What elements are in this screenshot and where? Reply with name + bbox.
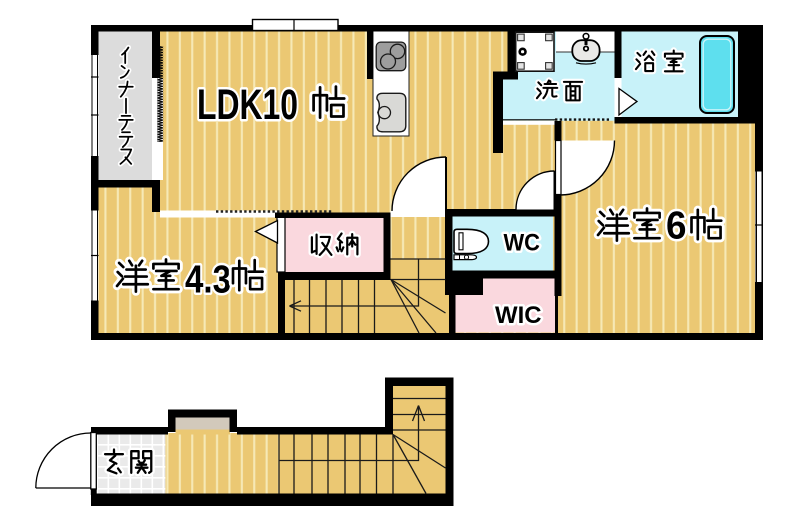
svg-text:4.3: 4.3 — [185, 259, 231, 302]
svg-text:6: 6 — [666, 205, 687, 248]
svg-text:LDK10: LDK10 — [197, 81, 298, 129]
svg-text:WIC: WIC — [495, 302, 542, 329]
svg-text:WC: WC — [504, 230, 541, 257]
